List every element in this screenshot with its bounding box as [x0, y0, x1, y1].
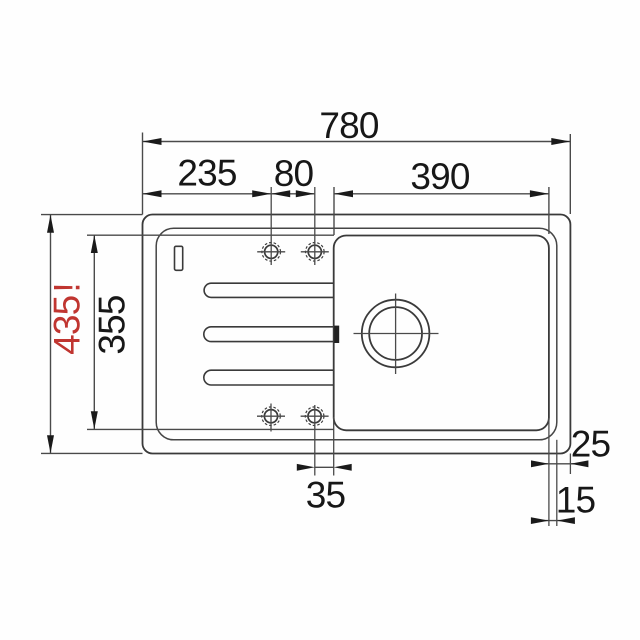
- svg-text:435!: 435!: [47, 283, 88, 355]
- svg-text:80: 80: [274, 153, 314, 194]
- svg-text:780: 780: [319, 105, 379, 146]
- svg-text:390: 390: [410, 156, 470, 197]
- svg-text:235: 235: [177, 153, 237, 194]
- svg-text:15: 15: [556, 479, 596, 520]
- svg-text:35: 35: [306, 475, 346, 516]
- svg-text:355: 355: [92, 295, 133, 355]
- svg-text:25: 25: [571, 423, 611, 464]
